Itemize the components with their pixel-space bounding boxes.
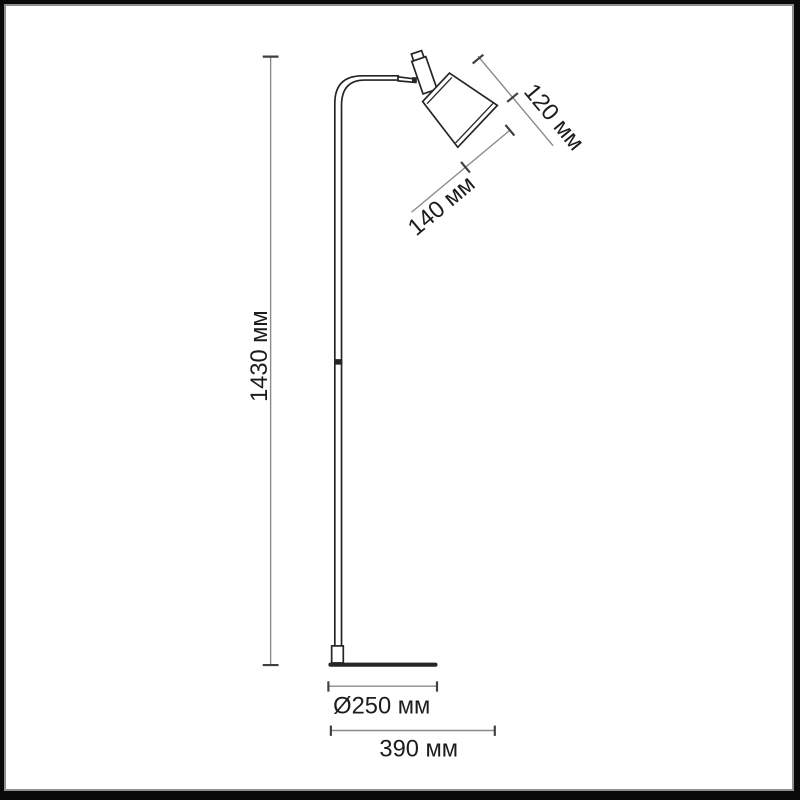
swivel-joint (412, 77, 417, 82)
lamp-drawing (328, 50, 497, 667)
lamp-arm-joint (398, 75, 417, 82)
lamp-base (328, 646, 437, 667)
dimension-height: 1430 мм (247, 57, 278, 665)
lamp-pole (334, 76, 398, 646)
dimension-shade-diameter-label: 140 мм (403, 171, 480, 241)
floor-lamp-dimension-diagram: 1430 мм 120 мм 140 мм Ø250 мм (4, 4, 794, 791)
pole-outer-line (335, 76, 398, 646)
dimension-base-diameter: Ø250 мм (328, 681, 437, 719)
lamp-socket-stem (409, 50, 437, 94)
pole-joint-sleeve (334, 359, 342, 365)
dimension-shade-depth-tick-2 (507, 93, 518, 102)
dimension-total-depth-label: 390 мм (379, 737, 458, 763)
dimension-shade-depth-tick-1 (473, 55, 484, 64)
dimension-height-label: 1430 мм (247, 310, 273, 401)
dimension-shade-diameter-tick-1 (505, 125, 514, 136)
base-plate (328, 663, 437, 667)
base-collar (332, 646, 344, 663)
pole-inner-line (342, 80, 399, 646)
dimension-base-diameter-label: Ø250 мм (333, 693, 430, 719)
diagram-frame: 1430 мм 120 мм 140 мм Ø250 мм (0, 0, 800, 800)
dimension-total-depth: 390 мм (331, 726, 495, 763)
socket-stem (412, 57, 437, 94)
